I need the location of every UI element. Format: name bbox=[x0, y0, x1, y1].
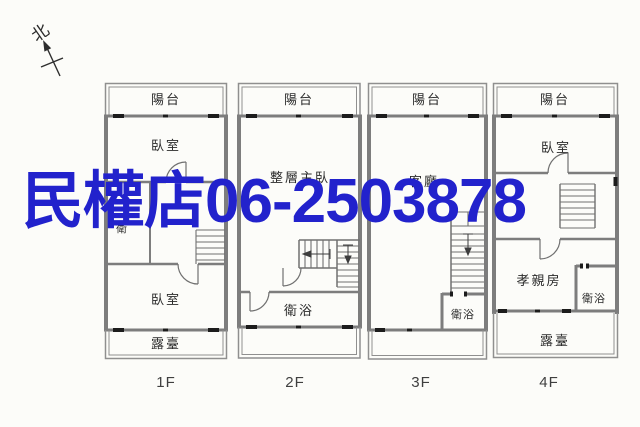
north-compass: 北 bbox=[20, 8, 80, 88]
floor-label-1f: 1F bbox=[156, 374, 176, 391]
bath-door-jambs-4f bbox=[580, 264, 589, 269]
room-label-balcony-1f: 陽台 bbox=[151, 92, 181, 107]
room-label-terrace-4f: 露臺 bbox=[540, 333, 570, 348]
floor-label-4f: 4F bbox=[539, 374, 559, 391]
floorplan-sheet: 北 陽台 臥室 bbox=[0, 0, 640, 427]
terrace-outline-2f bbox=[239, 327, 361, 358]
door-stairs-2f bbox=[283, 268, 301, 286]
floor-label-2f: 2F bbox=[285, 374, 305, 391]
room-label-balcony-2f: 陽台 bbox=[284, 92, 314, 107]
room-label-balcony-4f: 陽台 bbox=[540, 92, 570, 107]
room-label-bedroom-rear-1f: 臥室 bbox=[151, 292, 181, 307]
door-bath-2f bbox=[250, 292, 269, 311]
room-label-bath-2f: 衛浴 bbox=[284, 303, 314, 318]
north-arrow-icon bbox=[41, 42, 63, 76]
room-label-parents-4f: 孝親房 bbox=[516, 273, 561, 288]
room-label-balcony-3f: 陽台 bbox=[412, 92, 442, 107]
north-label: 北 bbox=[28, 19, 54, 45]
room-label-terrace-1f: 露臺 bbox=[151, 336, 181, 351]
door-rear-1f bbox=[178, 264, 198, 284]
door-parents-4f bbox=[540, 239, 560, 259]
terrace-outline-3f bbox=[369, 330, 487, 359]
room-label-bath-4f: 衛浴 bbox=[582, 292, 606, 305]
room-label-bedroom-front-1f: 臥室 bbox=[151, 138, 181, 153]
room-label-bath-3f: 衛浴 bbox=[451, 308, 475, 321]
watermark-text: 民權店06-2503878 bbox=[22, 170, 622, 234]
stairs-2f bbox=[299, 240, 360, 287]
bath-door-jambs-3f bbox=[450, 292, 467, 297]
floor-label-3f: 3F bbox=[411, 374, 431, 391]
